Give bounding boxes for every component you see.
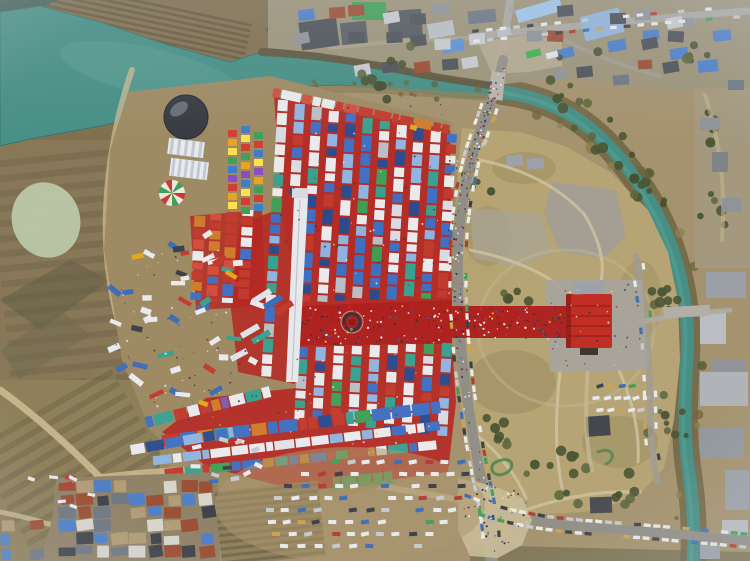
haze-overlay bbox=[0, 0, 750, 561]
scene-svg bbox=[0, 0, 750, 561]
aerial-photo-market-festival bbox=[0, 0, 750, 561]
